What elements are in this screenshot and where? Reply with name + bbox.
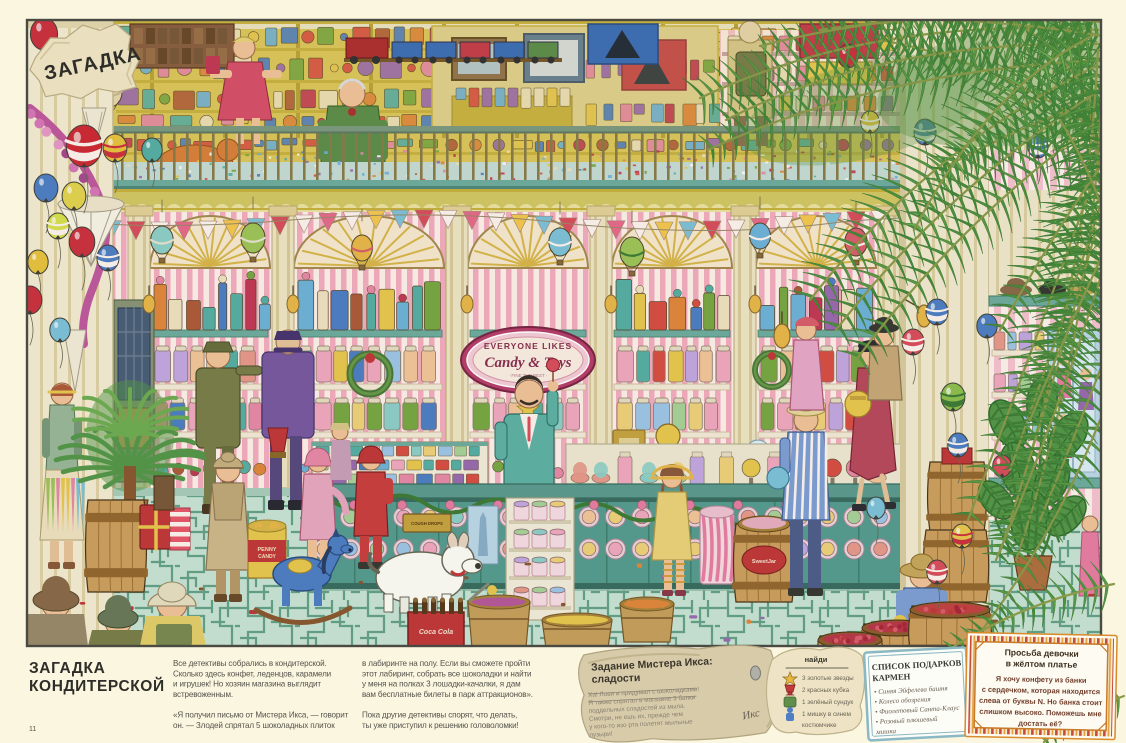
svg-text:этот лабиринт, собрать все шок: этот лабиринт, собрать все шоколадки и н… xyxy=(362,669,531,678)
svg-text:2 красных кубка: 2 красных кубка xyxy=(802,686,850,694)
svg-text:Пока другие детективы спорят,: Пока другие детективы спорят, что делать… xyxy=(362,711,517,720)
svg-text:«Я получил письмо от Мистера И: «Я получил письмо от Мистера Икса, — гов… xyxy=(173,711,349,720)
svg-text:пузыри!: пузыри! xyxy=(589,731,613,739)
svg-text:он. — Злодей спрятал 5 шоколад: он. — Злодей спрятал 5 шоколадных плиток xyxy=(173,721,335,730)
svg-text:КАРМЕН: КАРМЕН xyxy=(872,671,911,683)
svg-text:у меня на полках 3 лошадки-кач: у меня на полках 3 лошадки-качалки, я да… xyxy=(362,680,520,689)
svg-text:Я хочу конфету из банки: Я хочу конфету из банки xyxy=(996,674,1087,685)
svg-text:сладости: сладости xyxy=(591,672,640,686)
svg-text:3 золотые звезды: 3 золотые звезды xyxy=(802,675,854,682)
svg-text:ты уже приступил к решению гол: ты уже приступил к решению головоломки! xyxy=(362,721,519,730)
svg-text:вам бесплатные билеты в парк а: вам бесплатные билеты в парк аттракционо… xyxy=(362,690,533,699)
svg-text:найди: найди xyxy=(805,655,828,664)
svg-text:КОНДИТЕРСКОЙ: КОНДИТЕРСКОЙ xyxy=(29,677,165,695)
svg-text:и игрушек! Но хозяин магазина: и игрушек! Но хозяин магазина выглядит xyxy=(173,680,321,689)
svg-text:мишка: мишка xyxy=(875,727,897,736)
svg-text:Сколько здесь конфет, леденцов: Сколько здесь конфет, леденцов, карамели xyxy=(173,669,331,678)
svg-text:11: 11 xyxy=(29,726,36,733)
svg-text:костюмчике: костюмчике xyxy=(802,722,837,729)
svg-text:достать её?: достать её? xyxy=(1018,719,1063,729)
svg-text:1 мишку в синем: 1 мишку в синем xyxy=(802,711,851,718)
svg-text:встревоженным.: встревоженным. xyxy=(173,690,233,699)
svg-text:Просьба девочки: Просьба девочки xyxy=(1005,647,1079,659)
svg-text:в жёлтом платье: в жёлтом платье xyxy=(1006,658,1078,670)
svg-text:ЗАГАДКА: ЗАГАДКА xyxy=(29,660,105,677)
svg-text:в лабиринте на полу. Если вы с: в лабиринте на полу. Если вы сможете про… xyxy=(362,659,530,668)
svg-text:1 зелёный сундук: 1 зелёный сундук xyxy=(802,698,853,706)
svg-text:Все детективы собрались в конд: Все детективы собрались в кондитерской. xyxy=(173,659,327,668)
